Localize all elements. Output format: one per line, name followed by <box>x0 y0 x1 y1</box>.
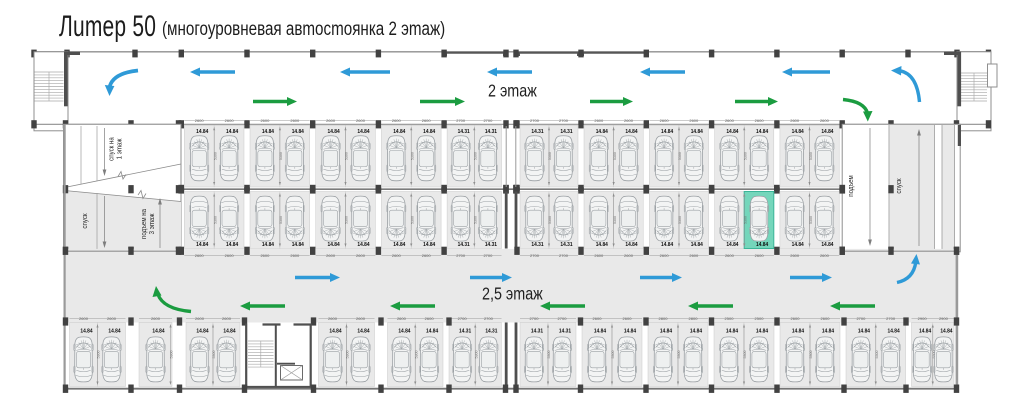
svg-text:2600: 2600 <box>290 118 300 123</box>
svg-text:14.84: 14.84 <box>624 328 636 334</box>
svg-text:14.84: 14.84 <box>262 242 274 248</box>
svg-text:14.84: 14.84 <box>690 328 702 334</box>
svg-text:14.31: 14.31 <box>458 129 470 135</box>
svg-text:2900: 2900 <box>918 316 928 321</box>
svg-text:2600: 2600 <box>422 253 432 258</box>
svg-text:14.31: 14.31 <box>559 328 571 334</box>
svg-text:2600: 2600 <box>356 316 366 321</box>
svg-text:2600: 2600 <box>195 316 205 321</box>
svg-text:2700: 2700 <box>484 316 494 321</box>
svg-text:2600: 2600 <box>755 253 765 258</box>
svg-text:5300: 5300 <box>744 152 748 160</box>
svg-text:14.31: 14.31 <box>485 242 497 248</box>
svg-text:14.84: 14.84 <box>756 328 768 334</box>
svg-text:2600: 2600 <box>593 316 603 321</box>
svg-text:14.84: 14.84 <box>357 242 369 248</box>
svg-text:5300: 5300 <box>548 216 552 224</box>
svg-text:2600: 2600 <box>725 253 735 258</box>
svg-text:2600: 2600 <box>195 118 205 123</box>
svg-text:14.84: 14.84 <box>223 328 235 334</box>
svg-text:2700: 2700 <box>856 316 866 321</box>
svg-text:14.84: 14.84 <box>792 129 804 135</box>
svg-text:14.84: 14.84 <box>393 242 405 248</box>
svg-text:5300: 5300 <box>279 152 283 160</box>
svg-text:2600: 2600 <box>225 118 235 123</box>
svg-text:2600: 2600 <box>790 118 800 123</box>
svg-text:5300: 5300 <box>212 351 216 359</box>
svg-text:2700: 2700 <box>456 253 466 258</box>
svg-text:2600: 2600 <box>790 253 800 258</box>
svg-text:2600: 2600 <box>260 253 270 258</box>
svg-text:14.84: 14.84 <box>919 328 931 334</box>
svg-text:14.84: 14.84 <box>262 129 274 135</box>
svg-text:2600: 2600 <box>820 118 830 123</box>
svg-text:14.31: 14.31 <box>485 129 497 135</box>
svg-text:5300: 5300 <box>414 351 418 359</box>
svg-text:5300: 5300 <box>611 351 615 359</box>
svg-text:(многоуровневая авmосmоянка 2: (многоуровневая авmосmоянка 2 эmаж) <box>162 17 445 39</box>
svg-text:14.31: 14.31 <box>459 328 471 334</box>
svg-text:5300: 5300 <box>809 152 813 160</box>
svg-text:2600: 2600 <box>195 253 205 258</box>
svg-text:2600: 2600 <box>260 118 270 123</box>
svg-text:5300: 5300 <box>170 351 174 359</box>
svg-text:14.84: 14.84 <box>152 328 164 334</box>
svg-text:14.84: 14.84 <box>328 242 340 248</box>
svg-text:14.84: 14.84 <box>858 328 870 334</box>
svg-text:2600: 2600 <box>356 118 366 123</box>
svg-text:2500: 2500 <box>755 316 765 321</box>
svg-text:2600: 2600 <box>225 253 235 258</box>
svg-text:2600: 2600 <box>725 118 735 123</box>
svg-text:2600: 2600 <box>392 118 402 123</box>
svg-text:14.84: 14.84 <box>423 242 435 248</box>
svg-text:5300: 5300 <box>613 152 617 160</box>
svg-text:2800: 2800 <box>689 316 699 321</box>
svg-text:2700: 2700 <box>483 253 493 258</box>
svg-text:14.84: 14.84 <box>940 328 952 334</box>
svg-text:2700: 2700 <box>559 253 569 258</box>
svg-text:2600: 2600 <box>624 253 634 258</box>
svg-text:2600: 2600 <box>328 316 338 321</box>
svg-text:2600: 2600 <box>356 253 366 258</box>
svg-text:2700: 2700 <box>559 118 569 123</box>
svg-text:14.84: 14.84 <box>292 242 304 248</box>
svg-text:2600: 2600 <box>624 118 634 123</box>
svg-text:2600: 2600 <box>222 316 232 321</box>
svg-text:nодъем на: nодъем на <box>141 209 149 239</box>
svg-text:сnуск на: сnуск на <box>108 137 116 161</box>
svg-text:2700: 2700 <box>530 316 540 321</box>
svg-text:14.84: 14.84 <box>596 129 608 135</box>
svg-text:14.84: 14.84 <box>660 328 672 334</box>
svg-text:14.84: 14.84 <box>423 129 435 135</box>
svg-text:14.84: 14.84 <box>292 129 304 135</box>
svg-text:сnуск: сnуск <box>896 178 904 193</box>
svg-text:5300: 5300 <box>345 152 349 160</box>
svg-text:2600: 2600 <box>660 253 670 258</box>
svg-text:2600: 2600 <box>689 118 699 123</box>
svg-text:2600: 2600 <box>660 118 670 123</box>
svg-text:2600: 2600 <box>623 316 633 321</box>
svg-text:2800: 2800 <box>659 316 669 321</box>
svg-text:14.84: 14.84 <box>226 242 238 248</box>
svg-text:5300: 5300 <box>474 152 478 160</box>
svg-text:14.84: 14.84 <box>756 242 768 248</box>
svg-text:14.84: 14.84 <box>821 129 833 135</box>
svg-text:сnуск: сnуск <box>82 213 90 228</box>
svg-text:14.84: 14.84 <box>625 129 637 135</box>
svg-text:14.84: 14.84 <box>108 328 120 334</box>
svg-text:14.84: 14.84 <box>393 129 405 135</box>
svg-text:5300: 5300 <box>809 216 813 224</box>
svg-text:2700: 2700 <box>456 118 466 123</box>
svg-text:14.84: 14.84 <box>792 242 804 248</box>
svg-text:14.84: 14.84 <box>329 328 341 334</box>
svg-text:14.84: 14.84 <box>357 129 369 135</box>
svg-text:14.84: 14.84 <box>792 328 804 334</box>
svg-text:2700: 2700 <box>530 118 540 123</box>
svg-text:5300: 5300 <box>613 216 617 224</box>
svg-text:2500: 2500 <box>725 316 735 321</box>
svg-text:14.84: 14.84 <box>196 328 208 334</box>
svg-text:2600: 2600 <box>397 316 407 321</box>
svg-text:14.31: 14.31 <box>531 129 543 135</box>
svg-text:5300: 5300 <box>678 216 682 224</box>
svg-text:14.84: 14.84 <box>691 129 703 135</box>
svg-text:5300: 5300 <box>97 351 101 359</box>
svg-text:2600: 2600 <box>326 253 336 258</box>
svg-text:14.31: 14.31 <box>560 129 572 135</box>
svg-text:5300: 5300 <box>678 152 682 160</box>
svg-text:5300: 5300 <box>474 351 478 359</box>
svg-text:2700: 2700 <box>886 316 896 321</box>
svg-text:14.84: 14.84 <box>821 242 833 248</box>
svg-text:3 эmаж: 3 эmаж <box>149 213 157 234</box>
svg-text:5300: 5300 <box>809 351 813 359</box>
svg-text:5300: 5300 <box>213 152 217 160</box>
svg-text:14.84: 14.84 <box>596 242 608 248</box>
svg-text:14.84: 14.84 <box>398 328 410 334</box>
svg-text:2700: 2700 <box>483 118 493 123</box>
svg-text:2600: 2600 <box>689 253 699 258</box>
svg-text:2600: 2600 <box>290 253 300 258</box>
svg-text:2600: 2600 <box>425 316 435 321</box>
svg-text:5300: 5300 <box>744 216 748 224</box>
svg-text:14.84: 14.84 <box>196 242 208 248</box>
svg-text:2600: 2600 <box>755 118 765 123</box>
svg-text:14.84: 14.84 <box>426 328 438 334</box>
svg-text:2600: 2600 <box>107 316 117 321</box>
svg-text:14.84: 14.84 <box>726 328 738 334</box>
svg-text:14.31: 14.31 <box>485 328 497 334</box>
svg-text:5300: 5300 <box>346 351 350 359</box>
svg-text:2,5 эmаж: 2,5 эmаж <box>482 285 543 304</box>
svg-text:14.84: 14.84 <box>594 328 606 334</box>
svg-text:1 эmаж: 1 эmаж <box>116 138 124 159</box>
svg-text:5300: 5300 <box>345 216 349 224</box>
svg-text:2900: 2900 <box>939 316 949 321</box>
svg-text:14.84: 14.84 <box>726 242 738 248</box>
svg-text:5300: 5300 <box>410 216 414 224</box>
svg-text:5300: 5300 <box>548 152 552 160</box>
svg-text:2600: 2600 <box>821 316 831 321</box>
svg-text:2600: 2600 <box>326 118 336 123</box>
svg-text:14.84: 14.84 <box>357 328 369 334</box>
svg-text:5300: 5300 <box>213 216 217 224</box>
svg-text:Лumep 50: Лumep 50 <box>59 11 156 43</box>
svg-text:14.31: 14.31 <box>560 242 572 248</box>
svg-text:14.31: 14.31 <box>458 242 470 248</box>
svg-text:14.84: 14.84 <box>661 242 673 248</box>
svg-text:2600: 2600 <box>594 253 604 258</box>
svg-text:5300: 5300 <box>875 351 879 359</box>
svg-text:14.84: 14.84 <box>196 129 208 135</box>
svg-text:2600: 2600 <box>820 253 830 258</box>
svg-text:14.84: 14.84 <box>328 129 340 135</box>
svg-text:2 эmаж: 2 эmаж <box>488 82 537 101</box>
svg-text:14.84: 14.84 <box>888 328 900 334</box>
svg-text:2600: 2600 <box>392 253 402 258</box>
svg-text:5300: 5300 <box>279 216 283 224</box>
svg-text:5300: 5300 <box>410 152 414 160</box>
svg-text:2600: 2600 <box>594 118 604 123</box>
svg-text:14.84: 14.84 <box>756 129 768 135</box>
svg-text:14.84: 14.84 <box>625 242 637 248</box>
svg-text:2600: 2600 <box>422 118 432 123</box>
svg-text:14.84: 14.84 <box>691 242 703 248</box>
svg-text:2700: 2700 <box>558 316 568 321</box>
svg-text:14.84: 14.84 <box>226 129 238 135</box>
svg-text:2600: 2600 <box>791 316 801 321</box>
svg-text:2700: 2700 <box>458 316 468 321</box>
svg-text:5300: 5300 <box>677 351 681 359</box>
svg-text:2600: 2600 <box>151 316 161 321</box>
svg-text:14.84: 14.84 <box>726 129 738 135</box>
svg-text:14.84: 14.84 <box>80 328 92 334</box>
svg-text:14.84: 14.84 <box>822 328 834 334</box>
svg-text:2700: 2700 <box>530 253 540 258</box>
svg-text:14.31: 14.31 <box>531 242 543 248</box>
svg-text:14.31: 14.31 <box>531 328 543 334</box>
svg-text:5300: 5300 <box>474 216 478 224</box>
svg-text:5300: 5300 <box>547 351 551 359</box>
svg-text:5300: 5300 <box>743 351 747 359</box>
svg-text:14.84: 14.84 <box>661 129 673 135</box>
svg-text:nодъем: nодъем <box>848 175 856 197</box>
svg-text:2600: 2600 <box>79 316 89 321</box>
